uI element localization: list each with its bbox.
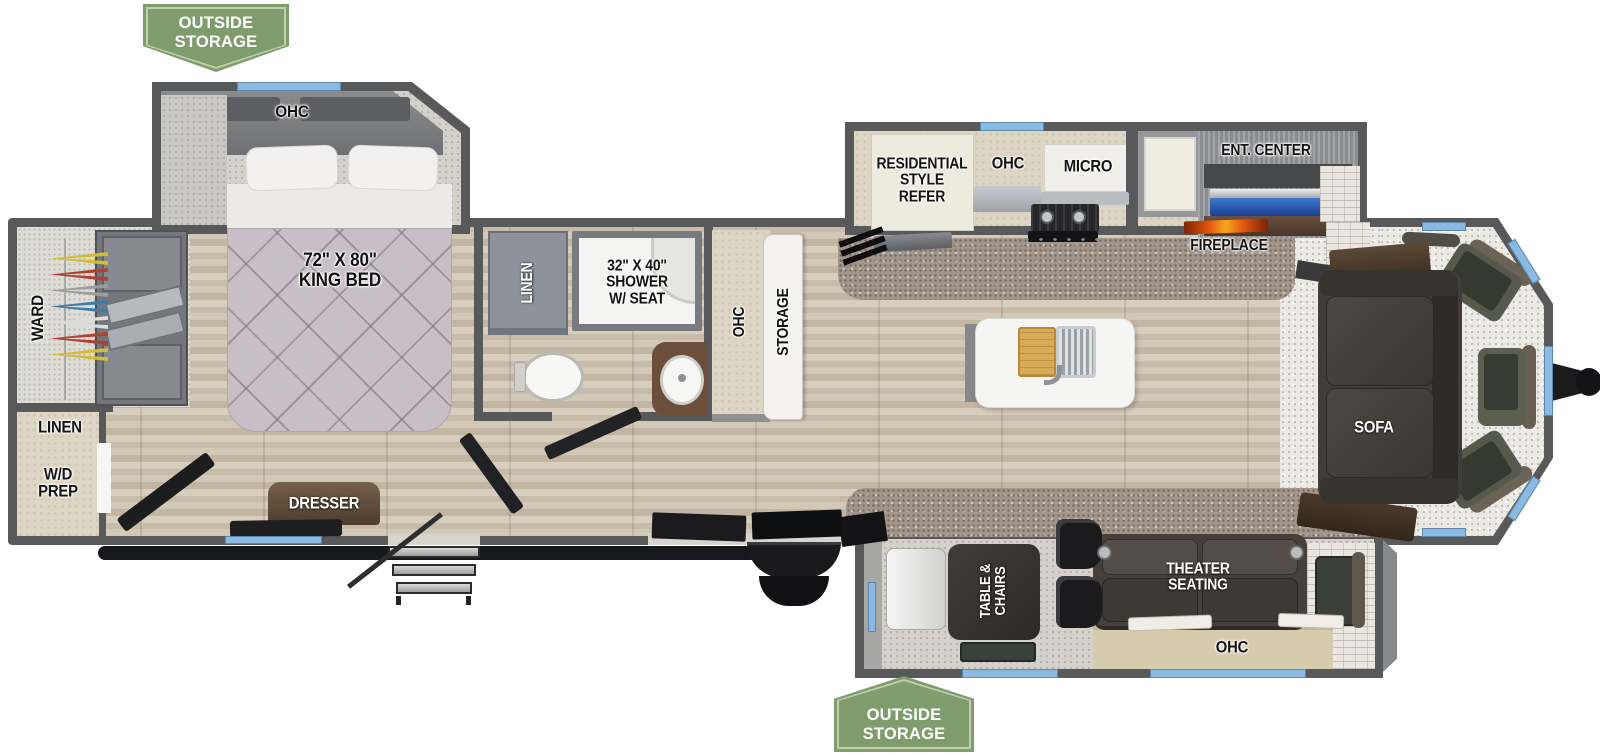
step-tread	[392, 564, 476, 576]
label-ward: WARD	[29, 295, 47, 341]
label-fireplace: FIREPLACE	[1190, 238, 1267, 254]
label-table-chairs: TABLE & CHAIRS	[979, 564, 1009, 618]
label-kitchen-ohc: OHC	[992, 155, 1024, 172]
cap-window	[1422, 528, 1466, 537]
label-hall-ohc: OHC	[732, 307, 748, 337]
dinette-floor-mat	[960, 642, 1036, 662]
kitchen-slide-window	[980, 122, 1044, 131]
dinette-slide-extrude	[1383, 540, 1397, 672]
cap-window	[1544, 346, 1553, 416]
entry-door-panel	[652, 512, 747, 541]
sofa-back	[1432, 278, 1458, 496]
rear-ohc-cabinet	[1093, 626, 1333, 669]
cupholder	[1289, 545, 1304, 560]
ent-center-pillar	[1320, 166, 1360, 222]
entry-steps	[747, 542, 841, 578]
living-carpet-strip	[846, 488, 1370, 537]
step-foot	[396, 596, 401, 605]
island-sink	[1056, 326, 1096, 378]
label-bedroom-ohc: OHC	[275, 103, 308, 121]
toilet	[522, 352, 584, 402]
dinette-side-window	[868, 582, 876, 632]
label-bath-linen: LINEN	[520, 263, 536, 304]
tv	[1210, 198, 1332, 216]
entry-steps	[759, 576, 829, 606]
bedroom-ohc-door	[300, 97, 410, 121]
dinette-window	[962, 669, 1058, 678]
cupholder	[1097, 545, 1112, 560]
dinette-chair	[1056, 519, 1102, 569]
dinette-window	[1150, 669, 1306, 678]
label-hall-storage: STORAGE	[776, 288, 792, 355]
linen-door-opening	[97, 443, 111, 513]
banner-text: OUTSIDE STORAGE	[834, 706, 974, 745]
bedroom-slide-side-panel	[161, 95, 227, 225]
stove-knob-panel	[1028, 231, 1098, 242]
bathroom-left-wall	[474, 227, 483, 421]
sofa-armrest	[1320, 478, 1458, 504]
label-shower: 32" X 40" SHOWER W/ SEAT	[606, 259, 668, 308]
hutch-cabinet	[886, 548, 946, 630]
label-sofa: SOFA	[1354, 419, 1394, 436]
label-ent-center: ENT. CENTER	[1221, 143, 1310, 159]
toilet-tank	[514, 362, 526, 392]
fold-out-step	[388, 546, 480, 604]
label-refer: RESIDENTIAL STYLE REFER	[876, 157, 967, 206]
stove-burner	[1072, 210, 1086, 224]
label-rear-ohc: OHC	[1216, 639, 1248, 656]
kitchen-interior-wall	[1126, 131, 1138, 226]
bed-pillow	[347, 144, 438, 191]
sofa-armrest	[1320, 270, 1458, 296]
cap-window	[1422, 222, 1466, 231]
label-theater-seating: THEATER SEATING	[1166, 562, 1230, 595]
sofa-cushion	[1326, 296, 1434, 386]
bed-pillow	[245, 144, 338, 191]
label-wd-prep: W/D PREP	[38, 467, 78, 502]
wardrobe-door-panel	[102, 236, 182, 292]
chair-seat-inner	[1484, 354, 1518, 410]
frame-corner-piece	[838, 511, 888, 547]
label-linen-left: LINEN	[38, 419, 82, 436]
step-foot	[466, 596, 471, 605]
bedroom-slide-window	[237, 82, 341, 91]
wardrobe-door-panel	[102, 344, 182, 400]
label-king-bed: 72" X 80" KING BED	[299, 251, 381, 291]
label-dresser: DRESSER	[289, 495, 360, 512]
bedroom-window	[225, 536, 322, 544]
floorplan: OHC 72" X 80" KING BED WARD LINEN W/D PR…	[0, 0, 1600, 755]
step-tread	[396, 582, 472, 594]
outside-storage-banner-top: OUTSIDE STORAGE	[143, 4, 289, 72]
banner-text: OUTSIDE STORAGE	[143, 14, 289, 53]
accent-chair-bolster	[1352, 552, 1365, 628]
entry-door-panel	[752, 509, 843, 539]
sink-faucet	[678, 374, 686, 382]
side-tray	[1128, 615, 1212, 632]
hitch-coupler	[1576, 368, 1600, 396]
closet-rod	[64, 238, 66, 400]
pantry	[1138, 131, 1202, 217]
dinette-chair	[1056, 576, 1102, 628]
side-tray	[1278, 613, 1344, 629]
cap-chair-right	[1478, 342, 1536, 432]
bathroom-bottom-wall	[474, 412, 552, 421]
label-micro: MICRO	[1064, 158, 1113, 175]
stove-burner	[1040, 210, 1054, 224]
outside-storage-banner-bottom: OUTSIDE STORAGE	[834, 676, 974, 752]
